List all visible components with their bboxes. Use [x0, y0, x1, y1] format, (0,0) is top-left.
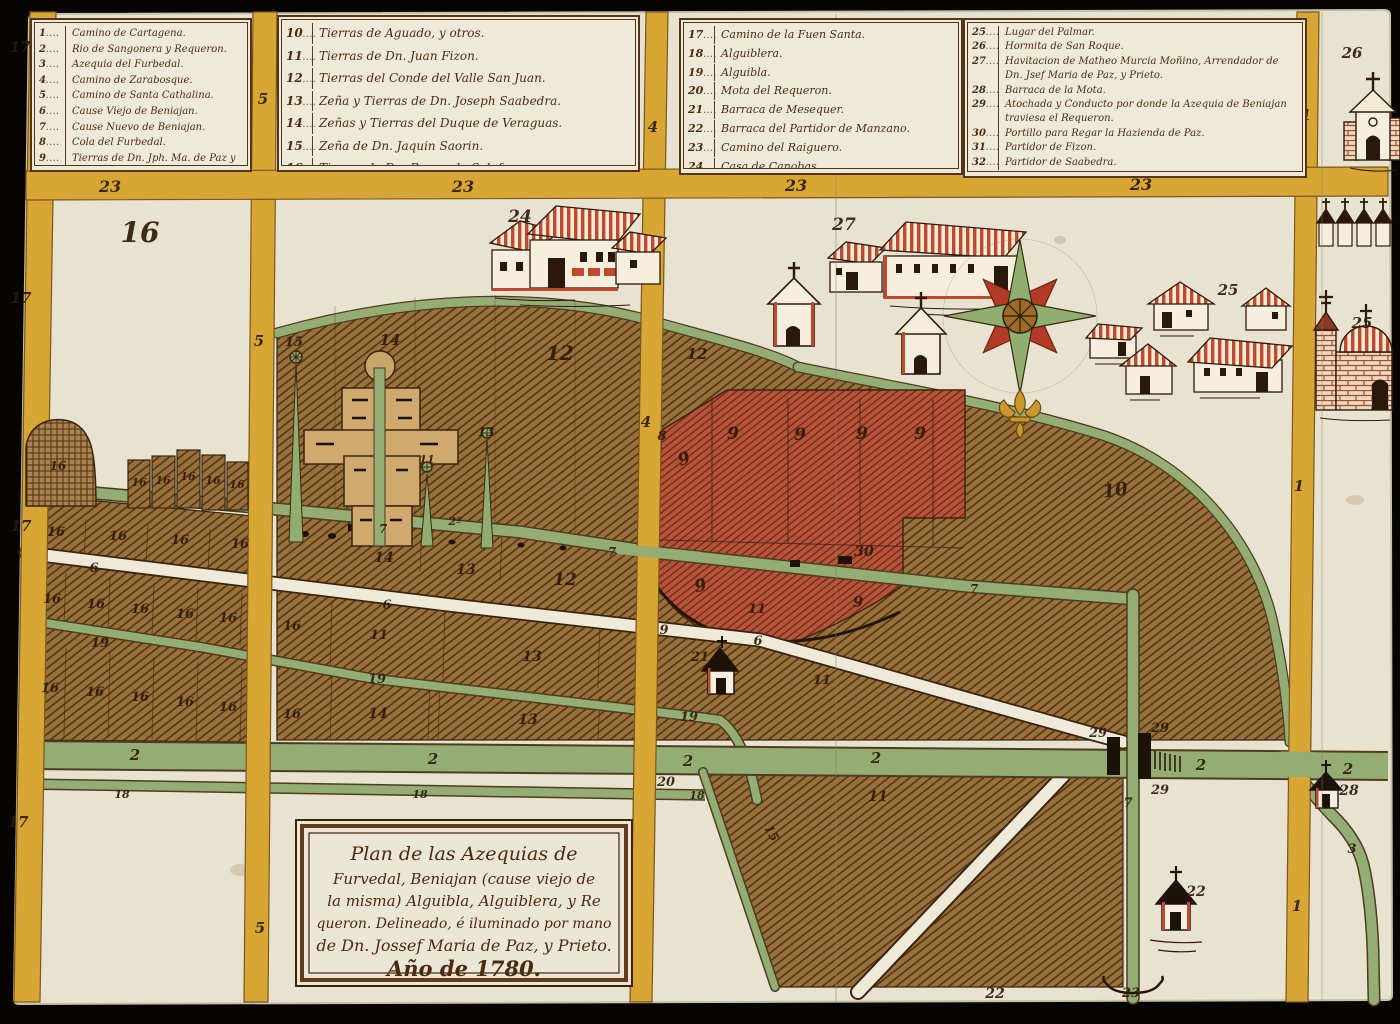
legend-item-number: 19	[688, 64, 714, 83]
legend-item-number: 24	[688, 158, 714, 169]
legend-item-text: Barraca de la Mota.	[998, 84, 1296, 98]
legend-item: 14 Zeñas y Tierras del Duque de Veraguas…	[286, 113, 629, 136]
legend-item-number: 18	[688, 45, 714, 64]
legend-item: 29 Atochada y Conducto por donde la Azeq…	[972, 98, 1296, 127]
map-label-19: 19	[91, 636, 109, 651]
legend-item-number: 7	[39, 120, 65, 136]
map-label-5: 5	[255, 919, 265, 937]
map-label-25: 25	[1217, 281, 1239, 299]
legend-item-text: Portillo para Regar la Hazienda de Paz.	[998, 127, 1296, 141]
map-label-9: 9	[853, 593, 864, 611]
map-label-4: 4	[648, 118, 658, 136]
legend-item: 11 Tierras de Dn. Juan Fizon.	[286, 46, 629, 69]
map-label-11: 11	[419, 453, 434, 466]
legend-item-number: 10	[286, 23, 312, 46]
map-label-2: 2	[682, 752, 693, 770]
map-label-1: 1	[1292, 897, 1302, 915]
legend-item-text: Alguiblera.	[714, 45, 952, 63]
legend-box-partidores: 25 Lugar del Palmar. 26 Hormita de San R…	[963, 18, 1307, 178]
legend-item-number: 21	[688, 101, 714, 120]
map-label-5: 5	[258, 90, 268, 108]
legend-item-number: 1	[39, 26, 65, 42]
legend-item-text: Tierras de Aguado, y otros.	[312, 23, 629, 44]
legend-item-text: Camino del Raiguero.	[714, 139, 952, 157]
map-label-16: 16	[219, 700, 237, 715]
map-label-16: 16	[283, 619, 301, 634]
legend-box-lugares: 17 Camino de la Fuen Santa. 18 Alguibler…	[679, 18, 963, 175]
map-label-12: 12	[546, 341, 574, 365]
legend-item: 7 Cause Nuevo de Beniajan.	[39, 120, 241, 136]
map-label-7: 7	[1123, 796, 1132, 811]
legend-item: 23 Camino del Raiguero.	[688, 139, 952, 158]
legend-item: 21 Barraca de Mesequer.	[688, 101, 952, 120]
map-label-17: 17	[11, 517, 32, 535]
map-label-6: 6	[89, 561, 98, 576]
map-label-2: 2	[427, 750, 438, 768]
map-label-16: 16	[131, 602, 149, 617]
legend-item-number: 26	[972, 40, 998, 54]
map-label-23: 23	[451, 177, 474, 196]
map-label-13: 13	[478, 425, 495, 439]
map-label-2: 2	[1195, 756, 1206, 774]
legend-item-number: 16	[286, 158, 312, 166]
map-label-12: 12	[687, 345, 708, 363]
map-label-18: 18	[114, 788, 130, 801]
legend-item-text: Azequia del Furbedal.	[65, 57, 241, 73]
legend-item-number: 5	[39, 88, 65, 104]
legend-item: 28 Barraca de la Mota.	[972, 84, 1296, 98]
legend-item-text: Havitacion de Matheo Murcia Moñino, Arre…	[998, 55, 1296, 84]
cartouche-line-2: Furvedal, Beniajan (cause viejo de	[332, 870, 595, 888]
title-cartouche: Plan de las Azequias de Furvedal, Beniaj…	[296, 820, 632, 986]
map-label-17: 17	[11, 289, 32, 307]
cartouche-line-5: de Dn. Jossef Maria de Paz, y Prieto.	[316, 936, 611, 955]
map-label-18: 18	[412, 788, 428, 801]
map-label-16: 16	[205, 474, 221, 487]
map-label-23: 23	[1121, 986, 1140, 1001]
legend-item: 24 Casa de Canobas.	[688, 158, 952, 169]
map-label-10: 10	[1101, 478, 1129, 502]
legend-item-number: 12	[286, 68, 312, 91]
legend-item-text: Zeña y Tierras de Dn. Joseph Saabedra.	[312, 91, 629, 112]
legend-item: 6 Cause Viejo de Beniajan.	[39, 104, 241, 120]
legend-item-number: 13	[286, 91, 312, 114]
legend-item: 22 Barraca del Partidor de Manzano.	[688, 120, 952, 139]
legend-item-text: Zeña de Dn. Jaquin Saorin.	[312, 136, 629, 157]
legend-item: 27 Havitacion de Matheo Murcia Moñino, A…	[972, 55, 1296, 84]
legend-item: 18 Alguiblera.	[688, 45, 952, 64]
map-label-29: 29	[1150, 721, 1169, 736]
map-label-21: 21	[690, 650, 709, 665]
cartouche-line-6: Año de 1780.	[385, 956, 541, 981]
map-label-14: 14	[380, 331, 401, 349]
map-label-9: 9	[794, 425, 806, 445]
legend-item-text: Barraca del Partidor de Manzano.	[714, 120, 952, 138]
legend-item-number: 29	[972, 98, 998, 112]
map-label-18: 18	[689, 789, 705, 802]
map-label-16: 16	[180, 470, 196, 483]
map-label-16: 16	[86, 685, 104, 700]
legend-item: 32 Partidor de Saabedra.	[972, 156, 1296, 170]
map-label-5: 5	[254, 332, 264, 350]
legend-item: 20 Mota del Requeron.	[688, 82, 952, 101]
map-label-20: 20	[656, 775, 675, 790]
legend-item: 30 Portillo para Regar la Hazienda de Pa…	[972, 127, 1296, 141]
legend-item-number: 11	[286, 46, 312, 69]
legend-item: 3 Azequia del Furbedal.	[39, 57, 241, 73]
legend-item-text: Tierras de Dn. Bernardo Salafranca.	[312, 158, 629, 166]
map-label-24: 24	[507, 207, 532, 227]
map-label-16: 16	[109, 529, 127, 544]
legend-item: 2 Rio de Sangonera y Requeron.	[39, 42, 241, 58]
map-label-22: 22	[984, 986, 1005, 1002]
legend-item-text: Zeñas y Tierras del Duque de Veraguas.	[312, 113, 629, 134]
legend-item: 25 Lugar del Palmar.	[972, 26, 1296, 40]
map-label-26: 26	[1341, 44, 1363, 62]
map-label-11: 11	[813, 673, 831, 688]
map-label-14: 14	[374, 550, 393, 566]
map-label-6: 6	[753, 634, 762, 649]
map-label-8: 8	[657, 429, 666, 444]
legend-item-text: Rio de Sangonera y Requeron.	[65, 42, 241, 58]
cartouche-line-3: la misma) Alguibla, Alguiblera, y Re	[327, 892, 601, 910]
legend-item-number: 15	[286, 136, 312, 159]
legend-item-number: 4	[39, 73, 65, 89]
map-label-30: 30	[854, 544, 874, 560]
legend-item-number: 23	[688, 139, 714, 158]
map-label-9: 9	[727, 424, 739, 444]
legend-item-text: Barraca de Mesequer.	[714, 101, 952, 119]
map-label-7: 7	[608, 545, 617, 559]
legend-item-text: Hormita de San Roque.	[998, 40, 1296, 54]
map-label-16: 16	[131, 476, 147, 489]
legend-item-number: 8	[39, 135, 65, 151]
legend-item-text: Camino de Cartagena.	[65, 26, 241, 42]
map-label-7: 7	[379, 522, 388, 536]
map-label-11: 11	[868, 789, 887, 805]
map-label-19: 19	[368, 672, 386, 687]
map-label-14: 14	[368, 706, 387, 722]
map-label-16: 16	[155, 474, 171, 487]
legend-item-text: Cause Viejo de Beniajan.	[65, 104, 241, 120]
legend-item-number: 25	[972, 26, 998, 40]
legend-item-text: Partidor de Fizon.	[998, 141, 1296, 155]
map-label-22: 22	[1185, 884, 1206, 900]
legend-item: 5 Camino de Santa Cathalina.	[39, 88, 241, 104]
legend-item-number: 9	[39, 151, 65, 166]
legend-item-number: 32	[972, 156, 998, 170]
legend-item-number: 31	[972, 141, 998, 155]
map-label-4: 4	[641, 413, 651, 431]
map-label-16: 16	[176, 695, 194, 710]
map-label-16: 16	[176, 607, 194, 622]
map-label-16: 16	[171, 533, 189, 548]
legend-item: 4 Camino de Zarabosque.	[39, 73, 241, 89]
legend-item-number: 20	[688, 82, 714, 101]
legend-item-text: Camino de la Fuen Santa.	[714, 26, 952, 44]
legend-item-number: 30	[972, 127, 998, 141]
map-label-29: 29	[1150, 783, 1169, 798]
map-label-16: 16	[43, 592, 61, 607]
legend-item-number: 6	[39, 104, 65, 120]
legend-item-text: Tierras de Dn. Jph. Ma. de Paz y Prieto.	[65, 151, 241, 166]
legend-item-number: 2	[39, 42, 65, 58]
map-label-16: 16	[41, 681, 59, 696]
map-label-11: 11	[748, 602, 766, 617]
map-label-17: 17	[10, 38, 31, 56]
map-label-29: 29	[1088, 726, 1107, 741]
map-label-2: 2	[870, 749, 881, 767]
map-label-27: 27	[831, 215, 856, 235]
map-label-16: 16	[87, 597, 105, 612]
map-label-16: 16	[131, 690, 149, 705]
legend-item: 9 Tierras de Dn. Jph. Ma. de Paz y Priet…	[39, 151, 241, 166]
legend-item-text: Tierras de Dn. Juan Fizon.	[312, 46, 629, 67]
canal-rio-sangonera-2	[26, 755, 1388, 766]
map-label-2: 2	[129, 746, 140, 764]
legend-item: 10 Tierras de Aguado, y otros.	[286, 23, 629, 46]
map-label-13: 13	[522, 649, 542, 665]
legend-item-number: 3	[39, 57, 65, 73]
legend-item: 12 Tierras del Conde del Valle San Juan.	[286, 68, 629, 91]
map-label-16: 16	[283, 707, 301, 722]
legend-item-text: Alguibla.	[714, 64, 952, 82]
map-label-25: 25	[1351, 314, 1373, 332]
map-label-28: 28	[1338, 783, 1359, 799]
legend-item-text: Atochada y Conducto por donde la Azequia…	[998, 98, 1296, 127]
map-label-2ª: 2ª	[447, 515, 461, 528]
legend-item: 31 Partidor de Fizon.	[972, 141, 1296, 155]
legend-item-number: 14	[286, 113, 312, 136]
map-label-11: 11	[370, 628, 388, 643]
legend-item: 19 Alguibla.	[688, 64, 952, 83]
photo-background: Plan de las Azequias de Furvedal, Beniaj…	[0, 0, 1400, 1024]
legend-item: 16 Tierras de Dn. Bernardo Salafranca.	[286, 158, 629, 166]
legend-item: 13 Zeña y Tierras de Dn. Joseph Saabedra…	[286, 91, 629, 114]
map-label-16: 16	[47, 525, 65, 540]
legend-item-number: 27	[972, 55, 998, 69]
legend-item: 26 Hormita de San Roque.	[972, 40, 1296, 54]
map-label-16: 16	[219, 611, 237, 626]
legend-item: 8 Cola del Furbedal.	[39, 135, 241, 151]
legend-item: 17 Camino de la Fuen Santa.	[688, 26, 952, 45]
map-label-16: 16	[121, 216, 160, 249]
legend-item-number: 22	[688, 120, 714, 139]
map-label-23: 23	[98, 177, 121, 196]
map-label-9: 9	[914, 424, 926, 444]
map-label-2: 2	[1342, 760, 1353, 778]
map-label-9: 9	[856, 424, 868, 444]
map-label-15: 15	[285, 335, 303, 350]
map-label-1: 1	[1294, 477, 1304, 495]
legend-box-tierras: 10 Tierras de Aguado, y otros. 11 Tierra…	[277, 15, 640, 172]
map-label-23: 23	[784, 176, 807, 195]
map-label-9: 9	[659, 623, 668, 638]
legend-item-text: Tierras del Conde del Valle San Juan.	[312, 68, 629, 89]
legend-item-text: Mota del Requeron.	[714, 82, 952, 100]
cartouche-line-4: queron. Delineado, é iluminado por mano	[317, 916, 612, 932]
map-label-13: 13	[518, 712, 538, 728]
legend-item: 1 Camino de Cartagena.	[39, 26, 241, 42]
map-label-12: 12	[553, 570, 577, 590]
legend-item-text: Lugar del Palmar.	[998, 26, 1296, 40]
legend-box-caminos: 1 Camino de Cartagena. 2 Rio de Sangoner…	[30, 18, 252, 172]
legend-item-text: Partidor de Saabedra.	[998, 156, 1296, 170]
map-label-16: 16	[231, 537, 249, 552]
map-label-16: 16	[50, 459, 67, 473]
legend-item-text: Camino de Zarabosque.	[65, 73, 241, 89]
map-label-16: 16	[229, 478, 245, 491]
map-label-17: 17	[8, 813, 29, 831]
map-label-6: 6	[382, 598, 391, 613]
legend-item-text: Cola del Furbedal.	[65, 135, 241, 151]
cartouche-line-1: Plan de las Azequias de	[349, 843, 577, 865]
legend-item-number: 17	[688, 26, 714, 45]
legend-item: 15 Zeña de Dn. Jaquin Saorin.	[286, 136, 629, 159]
map-label-19: 19	[680, 710, 698, 725]
legend-item-text: Cause Nuevo de Beniajan.	[65, 120, 241, 136]
map-label-13: 13	[456, 562, 476, 578]
map-label-7: 7	[970, 582, 979, 596]
legend-item-text: Camino de Santa Cathalina.	[65, 88, 241, 104]
legend-item-number: 28	[972, 84, 998, 98]
legend-item-text: Casa de Canobas.	[714, 158, 952, 169]
portillo-30	[838, 556, 852, 564]
map-label-3: 3	[1347, 842, 1356, 857]
